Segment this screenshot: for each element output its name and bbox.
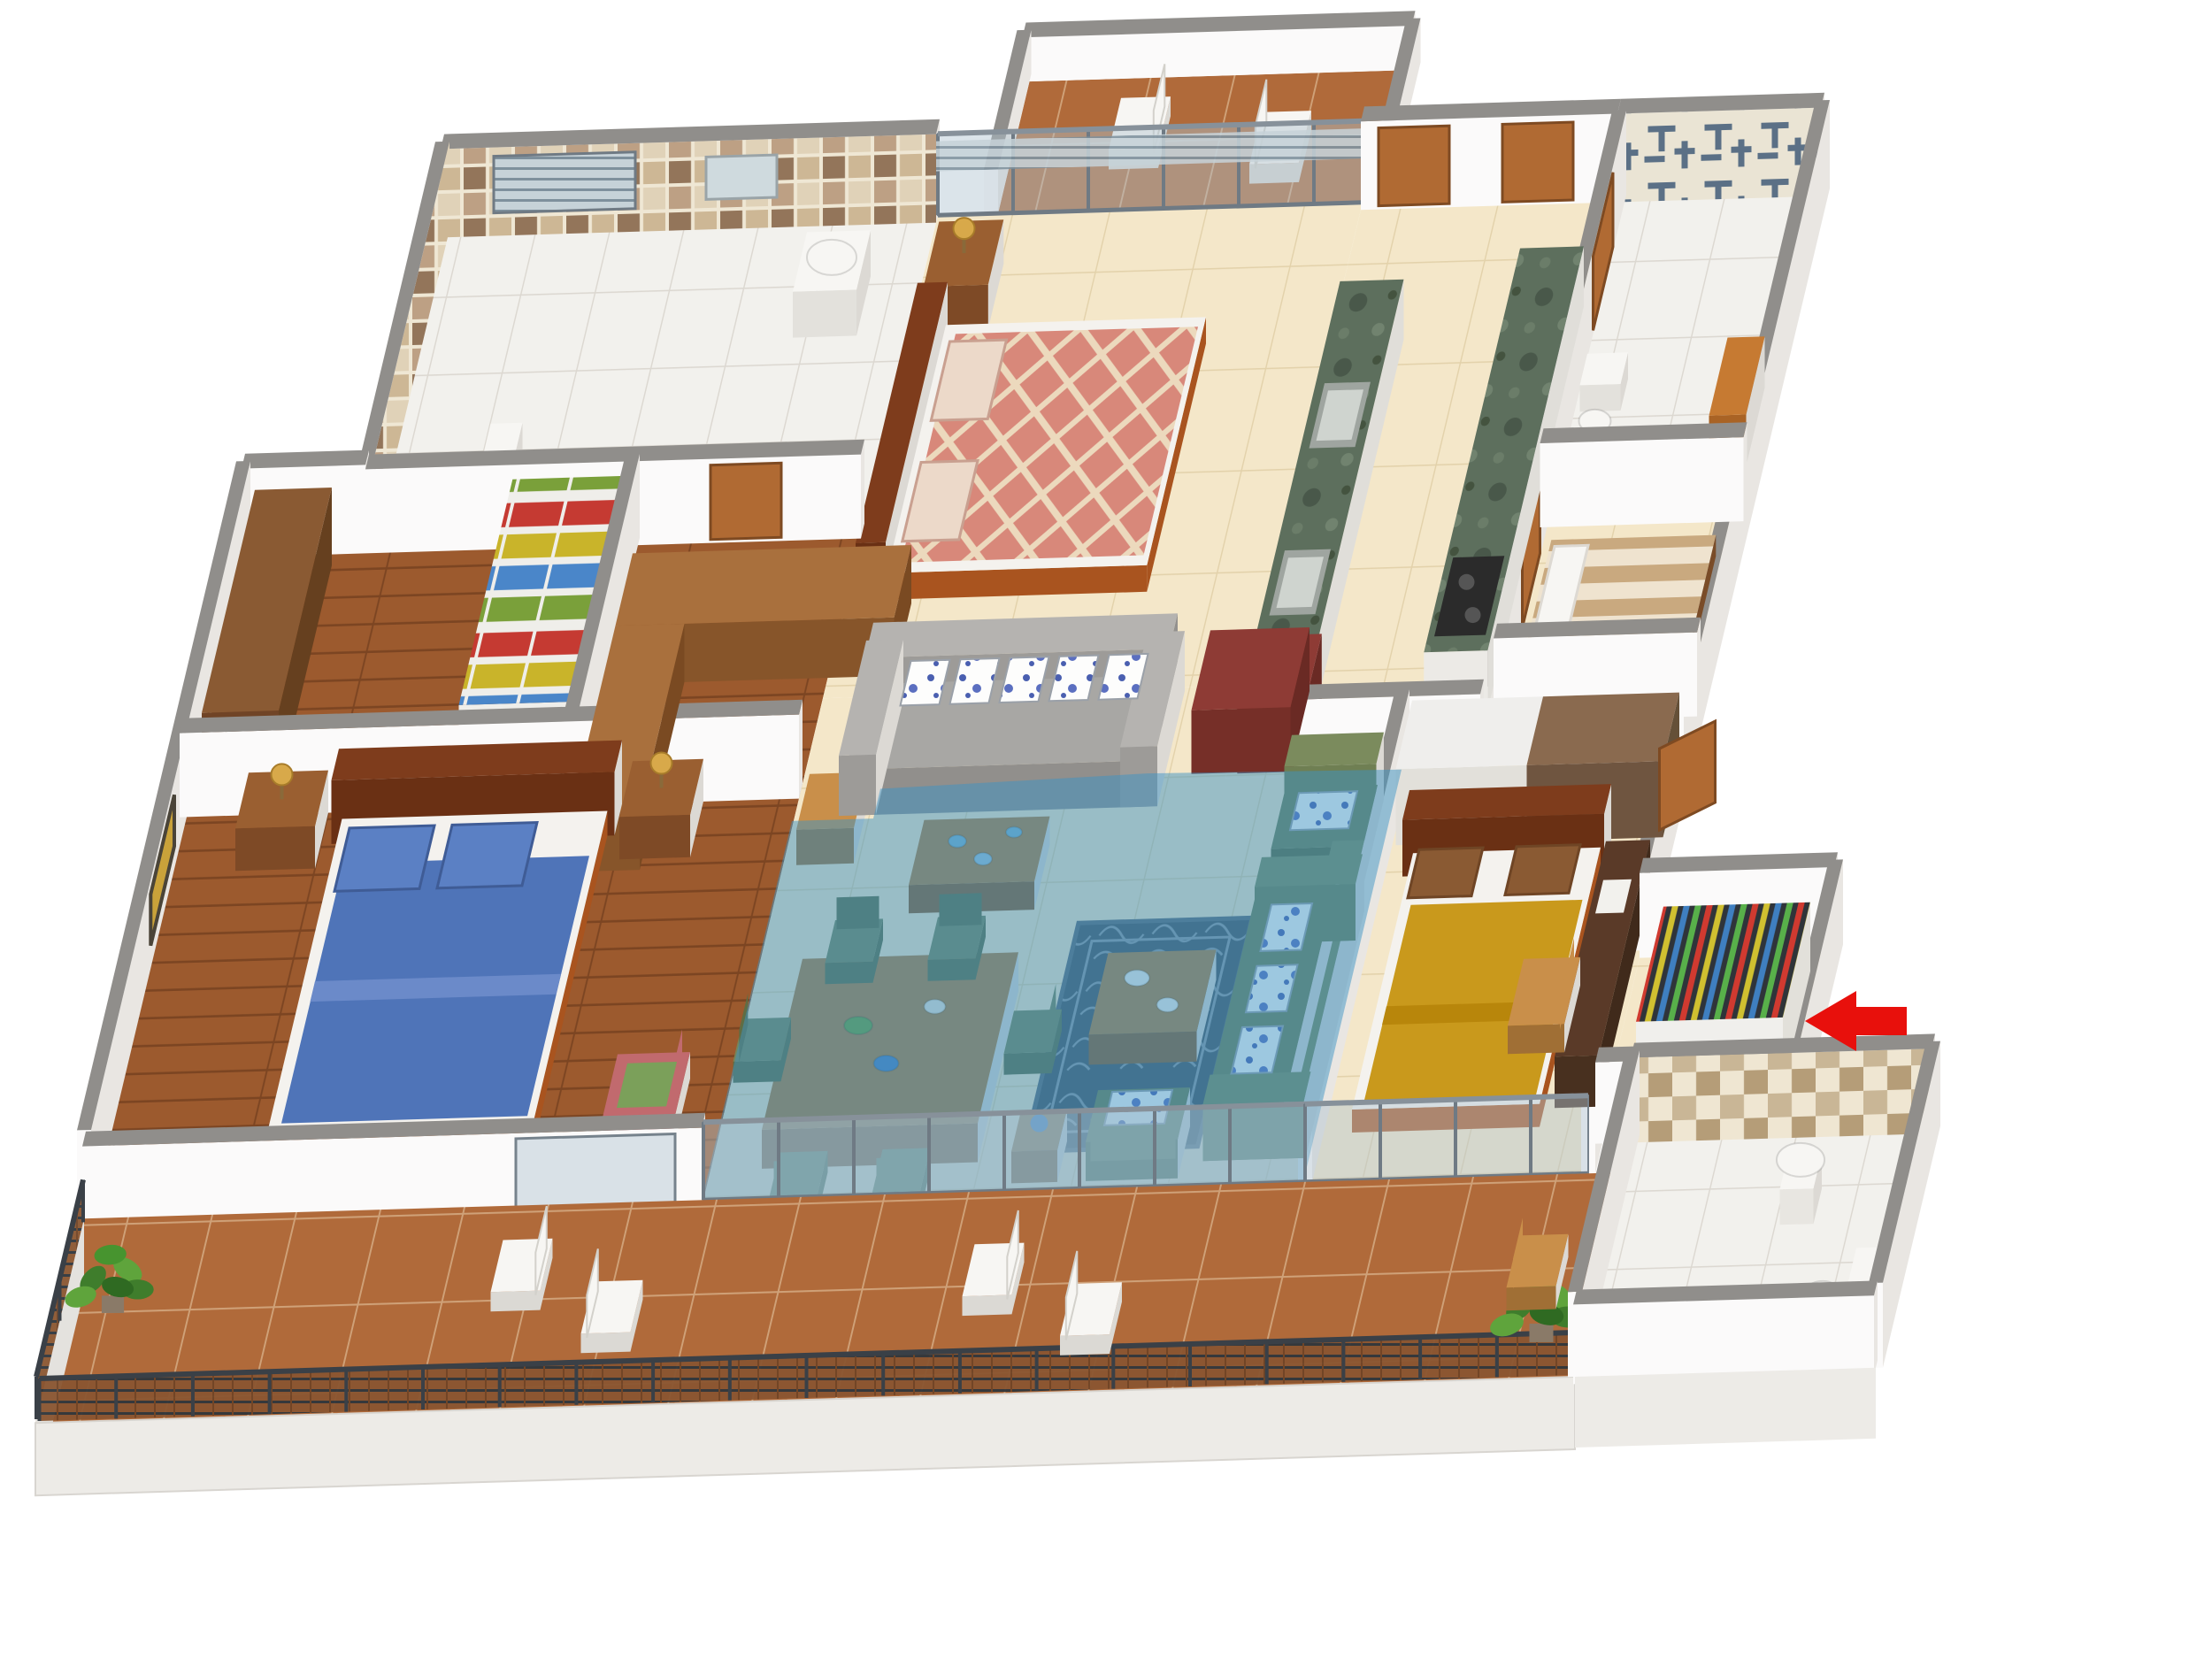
table-lamp xyxy=(272,764,293,785)
floorplan-3d-render xyxy=(0,0,2212,1659)
table-lamp xyxy=(651,753,672,774)
front-balcony xyxy=(35,1172,1624,1495)
plant-pot xyxy=(102,1295,124,1313)
plant-pot xyxy=(1530,1324,1554,1342)
table-lamp xyxy=(954,218,975,239)
screenshot-canvas xyxy=(0,0,2212,1659)
